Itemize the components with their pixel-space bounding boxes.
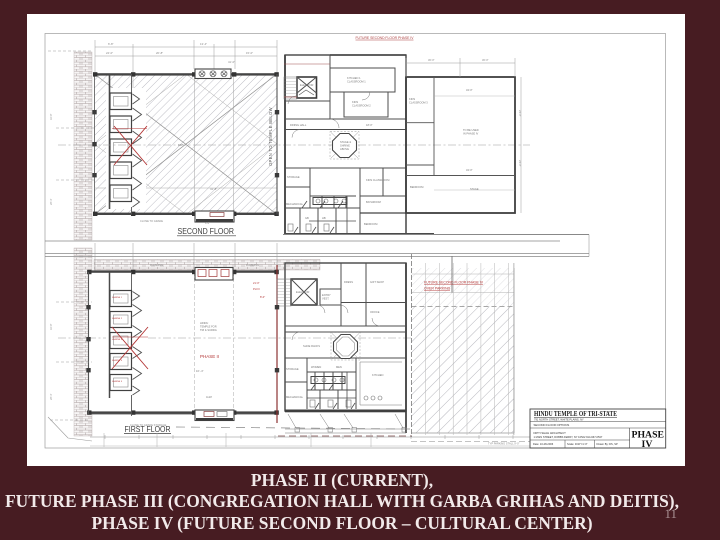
svg-text:SECOND FLOOR: SECOND FLOOR bbox=[178, 227, 235, 236]
svg-text:8'-0": 8'-0" bbox=[260, 295, 265, 299]
svg-text:WOMEN: WOMEN bbox=[311, 365, 321, 369]
svg-text:SHOE RACKS: SHOE RACKS bbox=[303, 344, 320, 348]
svg-text:FUTURE SECOND FLOOR PHASE IV: FUTURE SECOND FLOOR PHASE IV bbox=[424, 281, 484, 285]
svg-text:SHRINE 3: SHRINE 3 bbox=[112, 339, 123, 341]
svg-text:24'-0": 24'-0" bbox=[518, 160, 522, 167]
svg-text:MECHANICAL: MECHANICAL bbox=[286, 395, 304, 399]
svg-text:BEDROOM: BEDROOM bbox=[410, 185, 423, 189]
svg-text:KIDS CLASSROOM: KIDS CLASSROOM bbox=[366, 178, 389, 182]
svg-text:ABOVE: ABOVE bbox=[340, 147, 349, 151]
svg-text:KIDS: KIDS bbox=[352, 100, 358, 104]
svg-text:34'-0": 34'-0" bbox=[466, 168, 473, 172]
svg-text:24'-0": 24'-0" bbox=[106, 51, 113, 55]
svg-text:21'-0": 21'-0" bbox=[253, 281, 260, 285]
svg-text:OFFICE: OFFICE bbox=[370, 310, 380, 314]
svg-text:BATHROOM: BATHROOM bbox=[366, 200, 381, 204]
svg-text:6'-8": 6'-8" bbox=[108, 42, 114, 46]
svg-text:MEN: MEN bbox=[336, 365, 342, 369]
svg-text:KIDS: KIDS bbox=[409, 97, 415, 101]
svg-text:PH III: PH III bbox=[253, 287, 260, 291]
svg-text:32'-8": 32'-8" bbox=[49, 323, 53, 330]
svg-text:STAGE &: STAGE & bbox=[340, 140, 351, 144]
svg-text:ENTRY: ENTRY bbox=[322, 293, 331, 297]
svg-text:4x10': 4x10' bbox=[206, 395, 213, 399]
svg-text:GB: GB bbox=[305, 216, 309, 220]
svg-text:SHRINE 5: SHRINE 5 bbox=[112, 381, 123, 383]
svg-text:STORAGE: STORAGE bbox=[287, 175, 300, 179]
svg-text:36'-0": 36'-0" bbox=[482, 58, 489, 62]
svg-text:41'-8": 41'-8" bbox=[210, 187, 217, 191]
svg-text:791 NORTH STREET, WHITE PLAINS: 791 NORTH STREET, WHITE PLAINS, NY bbox=[534, 418, 584, 422]
svg-text:HINDU: HINDU bbox=[200, 321, 208, 325]
svg-text:FLASHING: FLASHING bbox=[246, 263, 259, 267]
svg-text:Scale: 3/32"=1'-0": Scale: 3/32"=1'-0" bbox=[567, 442, 588, 446]
svg-text:13'-4": 13'-4" bbox=[200, 42, 207, 46]
svg-text:CLOSE TO GRADE: CLOSE TO GRADE bbox=[140, 219, 163, 223]
svg-text:FUTURE SECOND FLOOR PHASE IV: FUTURE SECOND FLOOR PHASE IV bbox=[356, 36, 415, 40]
svg-text:34'-0": 34'-0" bbox=[466, 88, 473, 92]
svg-text:DIPTI SHAH ARCHITECT: DIPTI SHAH ARCHITECT bbox=[534, 431, 567, 435]
svg-text:16'·-4": 16'·-4" bbox=[196, 369, 204, 373]
svg-text:MECHANICAL: MECHANICAL bbox=[286, 202, 304, 206]
svg-text:SHRINE 2: SHRINE 2 bbox=[112, 318, 123, 320]
svg-text:DINING HALL: DINING HALL bbox=[290, 123, 307, 127]
svg-text:CLOSE TO GRADE STORAGE: CLOSE TO GRADE STORAGE bbox=[130, 423, 167, 427]
svg-text:36'-0": 36'-0" bbox=[428, 58, 435, 62]
svg-text:ELEVATOR: ELEVATOR bbox=[300, 83, 314, 87]
svg-text:15'-0": 15'-0" bbox=[246, 51, 253, 55]
svg-text:ELEVATOR: ELEVATOR bbox=[296, 290, 310, 294]
svg-text:CLASSROOM 3: CLASSROOM 3 bbox=[409, 101, 428, 105]
svg-text:Date: 10-28-2006: Date: 10-28-2006 bbox=[533, 442, 554, 446]
svg-text:20'-8": 20'-8" bbox=[156, 51, 163, 55]
svg-text:Drawn By: DS, SP: Drawn By: DS, SP bbox=[597, 442, 618, 446]
svg-text:18'-0": 18'-0" bbox=[366, 123, 373, 127]
svg-text:24'-0": 24'-0" bbox=[518, 110, 522, 117]
svg-text:FLASHING: FLASHING bbox=[150, 263, 163, 267]
svg-text:TO BE USED: TO BE USED bbox=[463, 128, 479, 132]
svg-text:GIFT SHOP: GIFT SHOP bbox=[370, 280, 384, 284]
svg-text:CLASSROOM 2: CLASSROOM 2 bbox=[352, 104, 371, 108]
svg-text:KITCHEN 1: KITCHEN 1 bbox=[347, 76, 361, 80]
svg-text:OPEN TO TEMPLE BELOW: OPEN TO TEMPLE BELOW bbox=[268, 107, 273, 166]
svg-text:32'-8": 32'-8" bbox=[49, 113, 53, 120]
svg-text:HB: HB bbox=[322, 216, 326, 220]
svg-text:TYP PARKING STALL 9'-0": TYP PARKING STALL 9'-0" bbox=[488, 442, 520, 446]
svg-text:IV: IV bbox=[642, 439, 653, 450]
svg-text:TRI & SURDG: TRI & SURDG bbox=[200, 328, 217, 332]
svg-text:28'-4": 28'-4" bbox=[49, 198, 53, 205]
svg-text:DRESS: DRESS bbox=[344, 280, 353, 284]
svg-text:STORAGE: STORAGE bbox=[286, 367, 299, 371]
svg-text:41'-0": 41'-0" bbox=[228, 60, 235, 64]
svg-text:IN PHASE IV: IN PHASE IV bbox=[463, 132, 479, 136]
svg-text:SHRINE 4: SHRINE 4 bbox=[112, 360, 123, 362]
svg-text:SHRINE: SHRINE bbox=[340, 143, 350, 147]
svg-text:PHASE II: PHASE II bbox=[200, 354, 219, 359]
svg-text:STAGE: STAGE bbox=[470, 187, 479, 191]
svg-text:1 MAIN STREET, DOBBS FERRY, NY: 1 MAIN STREET, DOBBS FERRY, NY 10522 914… bbox=[534, 435, 603, 439]
svg-text:KITCHEN: KITCHEN bbox=[372, 373, 384, 377]
svg-text:SHRINE 1: SHRINE 1 bbox=[112, 297, 123, 299]
svg-text:8'-0": 8'-0" bbox=[205, 221, 210, 225]
svg-text:BEDROOM: BEDROOM bbox=[364, 222, 377, 226]
svg-text:HINDU TEMPLE OF TRI-STATE: HINDU TEMPLE OF TRI-STATE bbox=[534, 411, 617, 418]
svg-text:TEMPLE FOR: TEMPLE FOR bbox=[200, 324, 217, 328]
svg-text:28'-4": 28'-4" bbox=[49, 393, 53, 400]
svg-text:OVER PARKING: OVER PARKING bbox=[424, 286, 451, 290]
svg-text:SECOND FLOOR OPTIONS: SECOND FLOOR OPTIONS bbox=[534, 423, 570, 427]
svg-text:VEST.: VEST. bbox=[322, 296, 329, 300]
svg-text:CLASSROOM 1: CLASSROOM 1 bbox=[347, 80, 366, 84]
